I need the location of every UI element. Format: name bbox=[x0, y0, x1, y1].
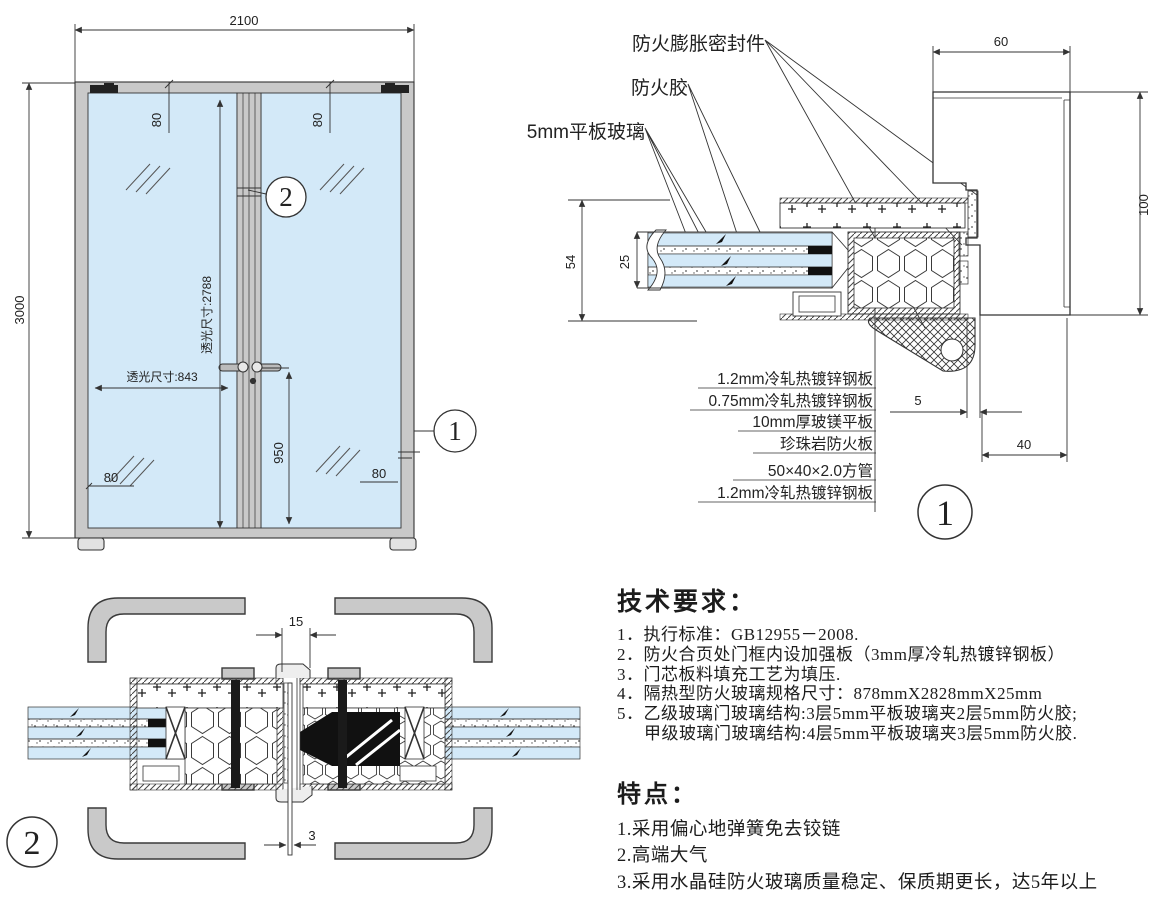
frame-expansion-seal bbox=[968, 191, 978, 237]
detail-2-marker: 2 bbox=[7, 817, 57, 867]
tech-item-2: 2．防火合页处门框内设加强板（3mm厚冷轧热镀锌钢板） bbox=[617, 645, 1170, 665]
svg-text:1.2mm冷轧热镀锌钢板: 1.2mm冷轧热镀锌钢板 bbox=[717, 370, 873, 388]
dim-80-top-right: 80 bbox=[310, 113, 325, 127]
svg-text:50×40×2.0方管: 50×40×2.0方管 bbox=[768, 462, 873, 480]
dim-leaf-thickness: 54 bbox=[563, 255, 578, 269]
dim-door-width: 2100 bbox=[230, 13, 259, 28]
dim-bottom-clearance: 3 bbox=[308, 828, 315, 843]
floor-spring-left bbox=[78, 538, 104, 550]
edge-expansion-seal-b bbox=[959, 261, 968, 284]
detail-1-marker: 1 bbox=[918, 485, 972, 539]
svg-text:珍珠岩防火板: 珍珠岩防火板 bbox=[780, 435, 873, 453]
detail-2-meeting-stile-section: 15 3 2 bbox=[0, 580, 590, 922]
glass-stack bbox=[647, 230, 848, 290]
dim-meeting-gap: 15 bbox=[289, 614, 303, 629]
tech-item-1: 1．执行标准：GB12955－2008. bbox=[617, 625, 1170, 645]
material-stack-labels: 1.2mm冷轧热镀锌钢板 0.75mm冷轧热镀锌钢板 10mm厚玻镁平板 珍珠岩… bbox=[690, 370, 876, 502]
floor-spring-spindle bbox=[288, 683, 292, 855]
right-leaf-body bbox=[300, 678, 452, 790]
tech-item-5-cont: 甲级玻璃门玻璃结构:4层5mm平板玻璃夹3层5mm防火胶. bbox=[617, 724, 1170, 744]
svg-text:2: 2 bbox=[24, 825, 41, 862]
svg-text:1.2mm冷轧热镀锌钢板: 1.2mm冷轧热镀锌钢板 bbox=[717, 484, 873, 502]
dim-gap-5: 5 bbox=[914, 393, 921, 408]
feature-item-1: 1.采用偏心地弹簧免去铰链 bbox=[617, 817, 1170, 844]
dim-door-height: 3000 bbox=[12, 296, 27, 325]
callout-flat-glass: 5mm平板玻璃 bbox=[527, 121, 645, 143]
tech-item-5: 5．乙级玻璃门玻璃结构:3层5mm平板玻璃夹2层5mm防火胶; bbox=[617, 704, 1170, 724]
dim-stop-40: 40 bbox=[1017, 437, 1031, 452]
edge-expansion-seal-a bbox=[959, 232, 968, 256]
svg-text:1: 1 bbox=[448, 416, 462, 446]
feature-item-3: 3.采用水晶硅防火玻璃质量稳定、保质期更长，达5年以上 bbox=[617, 870, 1170, 897]
dim-glass-stack: 25 bbox=[617, 255, 632, 269]
svg-text:1: 1 bbox=[936, 493, 954, 533]
dim-handle-height: 950 bbox=[271, 442, 286, 464]
dim-80-bottom-right: 80 bbox=[372, 466, 386, 481]
bottom-gasket bbox=[868, 318, 975, 371]
callout-expansion-seal: 防火膨胀密封件 bbox=[632, 33, 765, 55]
features-title: 特点： bbox=[617, 774, 1170, 809]
glass-panel-left bbox=[88, 93, 237, 528]
tech-item-4: 4．隔热型防火玻璃规格尺寸：878mmX2828mmX25mm bbox=[617, 684, 1170, 704]
dim-clear-height: 透光尺寸:2788 bbox=[200, 276, 214, 354]
notes-block: 技术要求： 1．执行标准：GB12955－2008. 2．防火合页处门框内设加强… bbox=[617, 582, 1170, 896]
svg-text:0.75mm冷轧热镀锌钢板: 0.75mm冷轧热镀锌钢板 bbox=[709, 392, 874, 410]
drawing-sheet: 2100 3000 透光尺寸:2788 透光尺寸:843 950 80 80 8… bbox=[0, 0, 1170, 922]
tech-requirements-title: 技术要求： bbox=[617, 582, 1170, 618]
tech-item-3: 3．门芯板料填充工艺为填压. bbox=[617, 665, 1170, 685]
svg-text:10mm厚玻镁平板: 10mm厚玻镁平板 bbox=[752, 413, 873, 431]
dim-frame-depth: 100 bbox=[1136, 194, 1151, 216]
glass-left bbox=[28, 707, 185, 759]
dim-80-bottom-left: 80 bbox=[104, 470, 118, 485]
svg-text:2: 2 bbox=[279, 182, 293, 212]
feature-item-2: 2.高端大气 bbox=[617, 843, 1170, 870]
dim-80-top-left: 80 bbox=[149, 113, 164, 127]
detail-1-jamb-section: 防火膨胀密封件 防火胶 5mm平板玻璃 bbox=[470, 0, 1170, 575]
dim-clear-width: 透光尺寸:843 bbox=[126, 370, 198, 384]
callout-fire-glue: 防火胶 bbox=[631, 77, 688, 99]
floor-spring-right bbox=[390, 538, 416, 550]
keyhole bbox=[250, 378, 255, 383]
dim-frame-face: 60 bbox=[994, 34, 1008, 49]
door-elevation-view: 2100 3000 透光尺寸:2788 透光尺寸:843 950 80 80 8… bbox=[0, 0, 492, 575]
